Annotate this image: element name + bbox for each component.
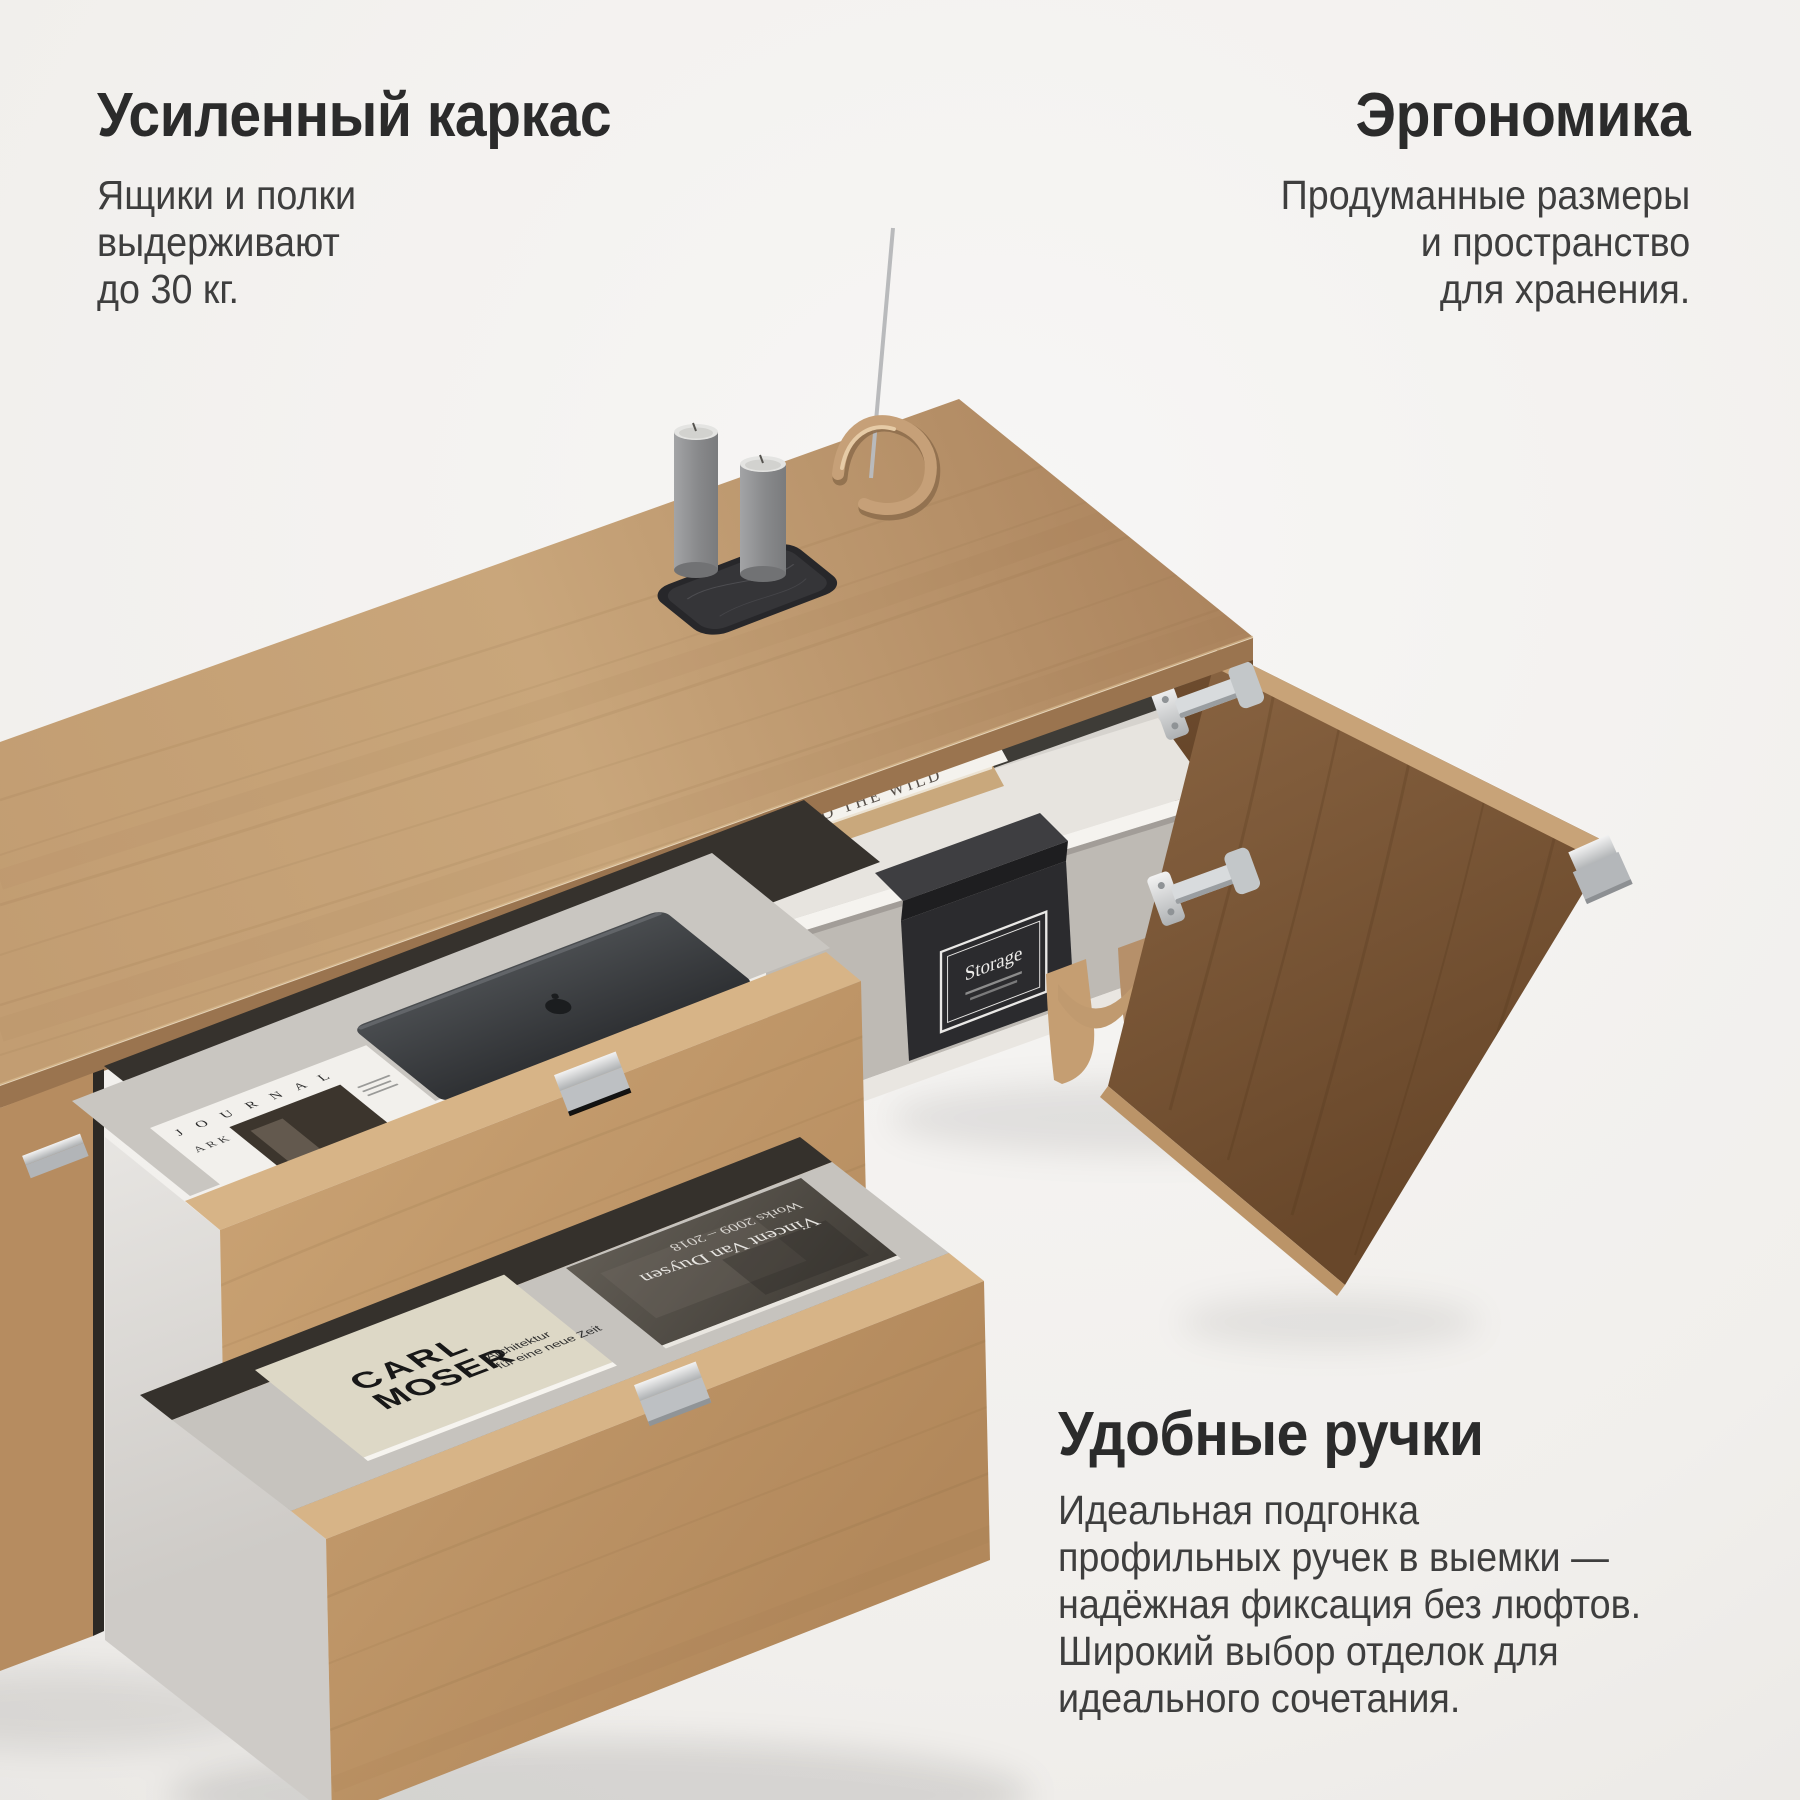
candle-right-body xyxy=(740,464,786,574)
candle-right xyxy=(740,455,786,582)
annotation-frame-line: до 30 кг. xyxy=(97,266,611,313)
candle-left xyxy=(674,423,718,578)
annotation-ergonomics: Эргономика Продуманные размеры и простра… xyxy=(1245,84,1690,313)
annotation-handles-line: Широкий выбор отделок для xyxy=(1058,1628,1641,1675)
annotation-handles-line: профильных ручек в выемки — xyxy=(1058,1534,1641,1581)
annotation-ergonomics-line: для хранения. xyxy=(1280,266,1690,313)
shadow-under-door xyxy=(1180,1296,1480,1348)
annotation-ergonomics-line: и пространство xyxy=(1280,219,1690,266)
annotation-frame-line: выдерживают xyxy=(97,219,611,266)
annotation-handles: Удобные ручки Идеальная подгонка профиль… xyxy=(1058,1403,1692,1722)
annotation-frame-line: Ящики и полки xyxy=(97,172,611,219)
annotation-ergonomics-title: Эргономика xyxy=(1280,84,1690,148)
candle-right-base xyxy=(740,566,786,582)
candle-left-base xyxy=(674,562,718,578)
annotation-handles-line: Идеальная подгонка xyxy=(1058,1487,1641,1534)
candle-left-body xyxy=(674,432,718,570)
annotation-ergonomics-line: Продуманные размеры xyxy=(1280,172,1690,219)
annotation-frame-title: Усиленный каркас xyxy=(97,84,611,148)
product-card: INTO THE WILD Storage xyxy=(0,0,1800,1800)
annotation-frame: Усиленный каркас Ящики и полки выдержива… xyxy=(97,84,656,313)
left-door-seam xyxy=(93,1069,104,1636)
annotation-handles-line: идеального сочетания. xyxy=(1058,1675,1641,1722)
annotation-frame-body: Ящики и полки выдерживают до 30 кг. xyxy=(97,172,611,313)
annotation-handles-title: Удобные ручки xyxy=(1058,1403,1641,1467)
annotation-handles-line: надёжная фиксация без люфтов. xyxy=(1058,1581,1641,1628)
annotation-ergonomics-body: Продуманные размеры и пространство для х… xyxy=(1280,172,1690,313)
annotation-handles-body: Идеальная подгонка профильных ручек в вы… xyxy=(1058,1487,1641,1722)
left-door xyxy=(0,1069,104,1671)
